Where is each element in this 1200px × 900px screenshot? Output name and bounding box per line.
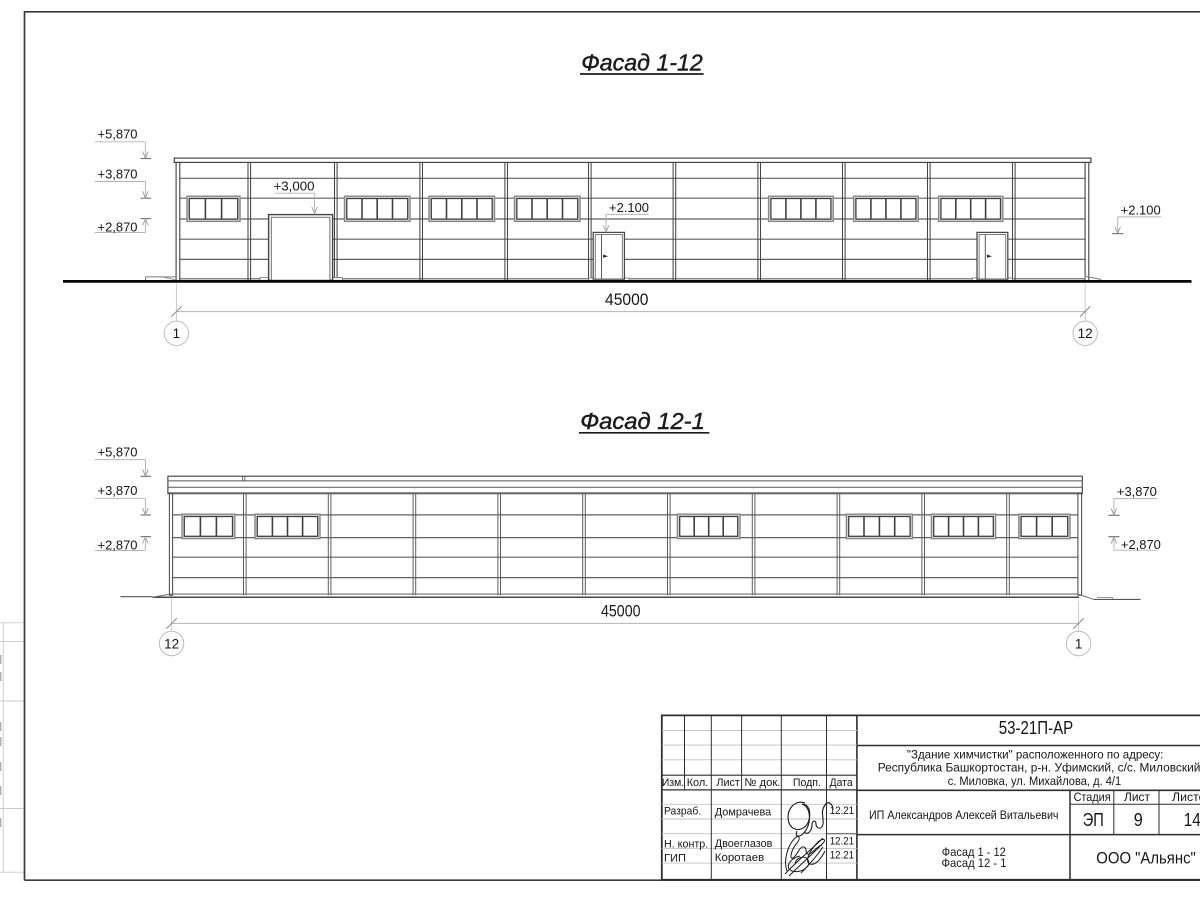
svg-text:+2,870: +2,870 [1121, 538, 1161, 552]
svg-text:Лист: Лист [1124, 790, 1150, 804]
svg-text:+2.100: +2.100 [1121, 203, 1161, 217]
svg-text:Н. контр.: Н. контр. [664, 839, 708, 851]
svg-text:1: 1 [1075, 636, 1083, 651]
svg-text:Домрачева: Домрачева [715, 806, 772, 818]
svg-text:+3,870: +3,870 [98, 484, 138, 498]
svg-text:Фасад 1-12: Фасад 1-12 [581, 49, 703, 75]
svg-text:12: 12 [1078, 326, 1093, 341]
svg-text:+3,870: +3,870 [1117, 485, 1157, 499]
svg-text:Стадия: Стадия [1074, 790, 1111, 804]
svg-text:"Здание химчистки" расположенн: "Здание химчистки" расположенного по адр… [907, 748, 1164, 762]
svg-text:45000: 45000 [601, 601, 641, 620]
svg-text:53-21П-АР: 53-21П-АР [999, 718, 1073, 738]
svg-text:+5,870: +5,870 [98, 128, 138, 142]
svg-text:Изм.: Изм. [662, 777, 684, 789]
svg-text:ГИП: ГИП [664, 852, 686, 864]
svg-text:+5,870: +5,870 [98, 445, 138, 459]
svg-text:ООО "Альянс": ООО "Альянс" [1096, 849, 1196, 867]
svg-text:Подп.: Подп. [793, 777, 821, 789]
svg-text:1: 1 [173, 326, 181, 341]
svg-text:ЭП: ЭП [1083, 809, 1104, 830]
svg-text:ИП Александров Алексей Виталье: ИП Александров Алексей Витальевич [869, 808, 1059, 822]
svg-text:9: 9 [1134, 809, 1143, 830]
svg-text:+3,870: +3,870 [98, 167, 138, 181]
svg-text:Фасад 12-1: Фасад 12-1 [580, 408, 705, 434]
svg-text:14: 14 [1184, 809, 1200, 830]
svg-text:12.21: 12.21 [830, 850, 854, 862]
svg-text:№ док.: № док. [744, 777, 780, 789]
svg-text:Листов: Листов [1172, 790, 1200, 804]
svg-text:12.21: 12.21 [830, 805, 854, 817]
svg-text:45000: 45000 [605, 290, 649, 309]
svg-text:+3,000: +3,000 [274, 180, 315, 194]
svg-text:Республика Башкортостан, р-н.: Республика Башкортостан, р-н. Уфимский, … [878, 761, 1200, 775]
svg-text:12.21: 12.21 [830, 836, 854, 848]
svg-text:Коротаев: Коротаев [715, 852, 764, 864]
svg-text:+2.100: +2.100 [609, 201, 649, 215]
svg-text:Фасад 12 - 1: Фасад 12 - 1 [942, 856, 1007, 870]
svg-text:12: 12 [164, 636, 179, 651]
svg-text:с. Миловка, ул. Михайлова, д.: с. Миловка, ул. Михайлова, д. 4/1 [948, 774, 1122, 788]
svg-text:Двоеглазов: Двоеглазов [715, 838, 773, 850]
svg-text:+2,870: +2,870 [98, 220, 138, 234]
svg-text:Лист: Лист [716, 777, 740, 789]
svg-text:+2,870: +2,870 [98, 538, 138, 552]
svg-text:Разраб.: Разраб. [664, 806, 701, 818]
svg-text:Кол.: Кол. [687, 777, 709, 789]
svg-text:Дата: Дата [830, 777, 854, 789]
